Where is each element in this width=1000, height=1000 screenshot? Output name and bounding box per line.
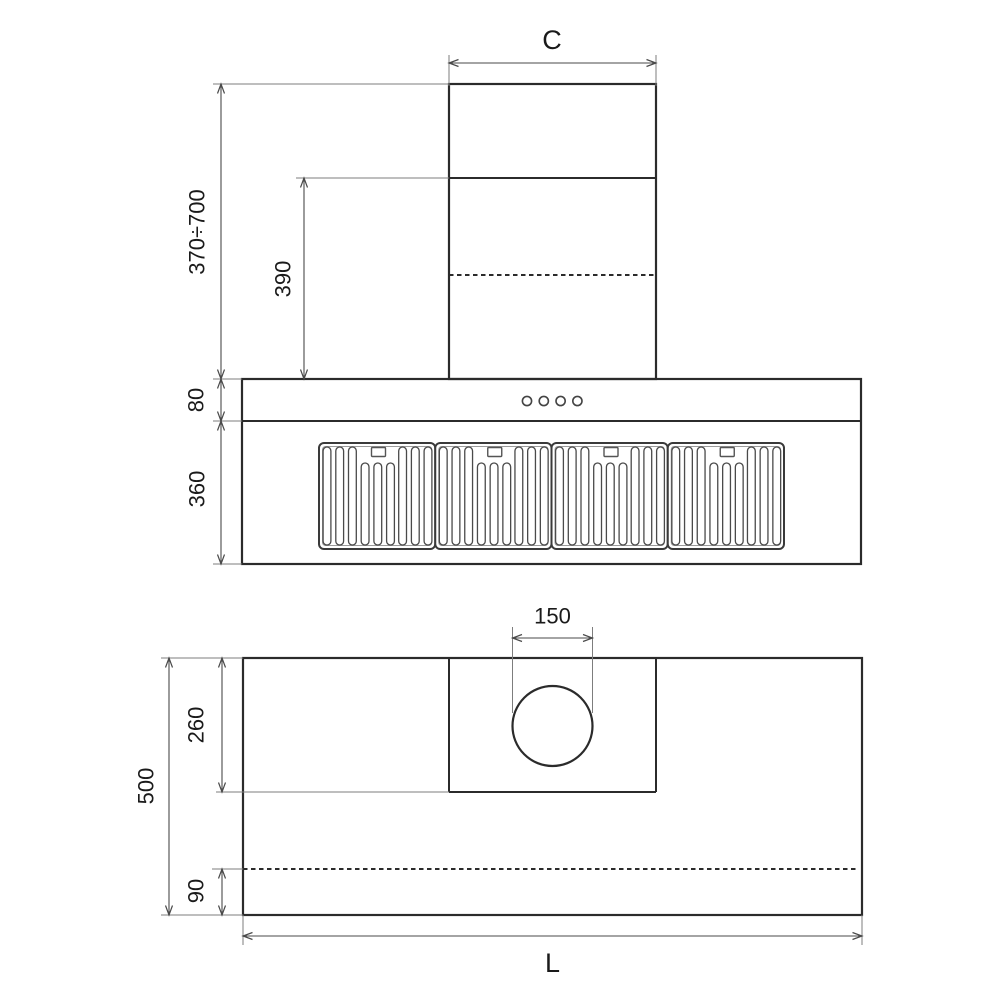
filter-slot-full bbox=[568, 447, 576, 545]
filter-bank bbox=[319, 443, 784, 549]
filter-handle bbox=[372, 448, 386, 457]
filter-slot-short bbox=[387, 463, 395, 545]
dim-label-rear-clearance: 90 bbox=[184, 879, 209, 903]
filter-slot-full bbox=[747, 447, 755, 545]
control-button bbox=[539, 396, 548, 405]
filter-slot-short bbox=[735, 463, 743, 545]
dim-label-body-width: L bbox=[545, 948, 560, 978]
dim-label-control-band-height: 80 bbox=[184, 388, 209, 412]
filter-slot-full bbox=[336, 447, 344, 545]
filter-slot-short bbox=[374, 463, 382, 545]
filter-slot-full bbox=[773, 447, 781, 545]
filter-slot-full bbox=[644, 447, 652, 545]
control-button bbox=[556, 396, 565, 405]
filter-slot-full bbox=[528, 447, 536, 545]
filter-slot-short bbox=[723, 463, 731, 545]
range-hood-dimension-drawing: C 370÷700 390 80 360 bbox=[0, 0, 1000, 1000]
filter-handle bbox=[720, 448, 734, 457]
filter-slot-full bbox=[465, 447, 473, 545]
filter-slot-short bbox=[361, 463, 369, 545]
control-buttons bbox=[522, 396, 582, 405]
dim-label-body-depth: 500 bbox=[134, 768, 159, 805]
filter-slot-full bbox=[760, 447, 768, 545]
filter-slot-full bbox=[685, 447, 693, 545]
filter-slot-short bbox=[619, 463, 627, 545]
filter-slot-full bbox=[631, 447, 639, 545]
dimension-drawing-canvas: C 370÷700 390 80 360 bbox=[0, 0, 1000, 1000]
filter-slot-short bbox=[606, 463, 614, 545]
filter-slot-full bbox=[540, 447, 548, 545]
filter-panel bbox=[668, 443, 784, 549]
dim-label-chimney-depth: 260 bbox=[184, 707, 209, 744]
top-view bbox=[212, 658, 862, 915]
filter-slot-short bbox=[503, 463, 511, 545]
filter-slot-full bbox=[452, 447, 460, 545]
filter-slot-full bbox=[323, 447, 331, 545]
filter-slot-full bbox=[581, 447, 589, 545]
top-view-body-outline bbox=[243, 658, 862, 915]
filter-slot-short bbox=[477, 463, 485, 545]
dim-label-chimney-visible-height: 390 bbox=[271, 261, 296, 298]
filter-slot-full bbox=[349, 447, 357, 545]
dim-label-duct-hole-diameter: 150 bbox=[534, 604, 571, 629]
filter-slot-full bbox=[657, 447, 665, 545]
filter-slot-full bbox=[697, 447, 705, 545]
filter-slot-short bbox=[490, 463, 498, 545]
dim-label-height-range: 370÷700 bbox=[185, 189, 210, 275]
filter-slot-full bbox=[672, 447, 680, 545]
filter-slot-full bbox=[515, 447, 523, 545]
filter-slot-short bbox=[710, 463, 718, 545]
filter-handle bbox=[488, 448, 502, 457]
filter-panel bbox=[435, 443, 551, 549]
dim-label-body-height: 360 bbox=[185, 471, 210, 508]
filter-slot-full bbox=[411, 447, 419, 545]
filter-slot-full bbox=[556, 447, 564, 545]
filter-panel bbox=[552, 443, 668, 549]
dim-label-chimney-width: C bbox=[542, 25, 562, 55]
filter-slot-full bbox=[399, 447, 407, 545]
filter-slot-short bbox=[594, 463, 602, 545]
chimney-outline bbox=[449, 84, 656, 379]
filter-handle bbox=[604, 448, 618, 457]
front-view bbox=[242, 84, 861, 564]
control-button bbox=[573, 396, 582, 405]
filter-panel bbox=[319, 443, 435, 549]
filter-slot-full bbox=[424, 447, 432, 545]
filter-slot-full bbox=[439, 447, 447, 545]
duct-hole-circle bbox=[513, 686, 593, 766]
control-button bbox=[522, 396, 531, 405]
